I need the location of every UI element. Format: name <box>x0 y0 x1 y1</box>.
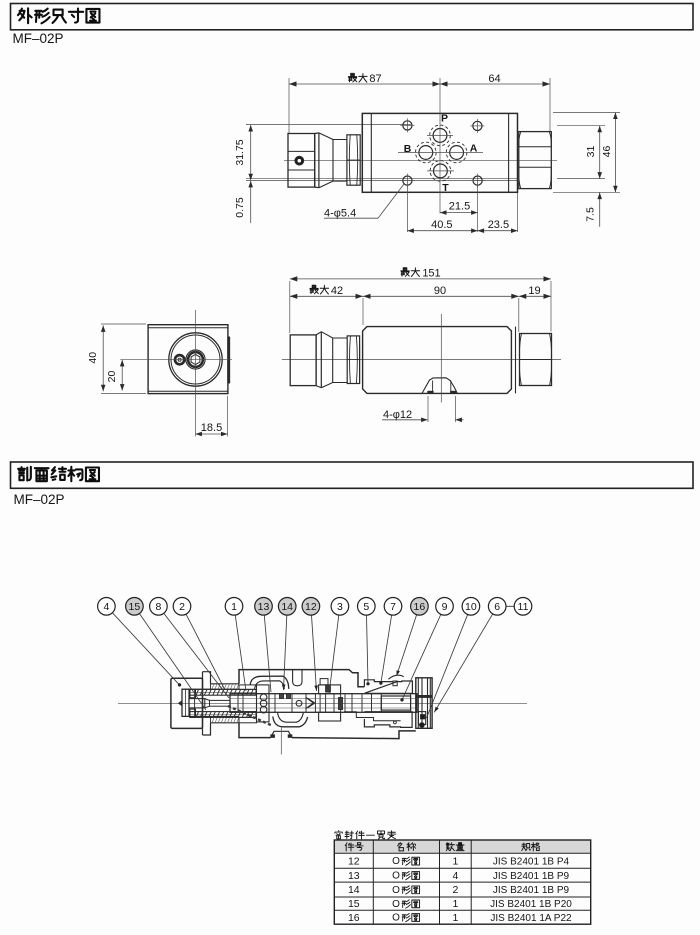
svg-text:46: 46 <box>601 146 613 158</box>
svg-text:MF–02P: MF–02P <box>13 31 64 46</box>
svg-text:31: 31 <box>585 146 597 158</box>
svg-text:JIS B2401 1B P9: JIS B2401 1B P9 <box>493 885 570 896</box>
svg-text:31.75: 31.75 <box>234 139 246 165</box>
svg-text:O: O <box>392 913 400 924</box>
svg-text:13: 13 <box>258 601 270 613</box>
svg-text:A: A <box>470 143 478 155</box>
svg-text:12: 12 <box>348 855 360 867</box>
svg-text:42: 42 <box>331 285 343 297</box>
svg-text:P: P <box>441 113 448 125</box>
svg-text:16: 16 <box>414 601 426 613</box>
svg-text:1: 1 <box>452 898 458 910</box>
svg-text:14: 14 <box>281 601 293 613</box>
svg-text:2: 2 <box>179 601 185 613</box>
svg-text:7: 7 <box>390 601 396 613</box>
svg-text:1: 1 <box>452 912 458 924</box>
svg-text:JIS B2401 1B P20: JIS B2401 1B P20 <box>490 899 572 910</box>
svg-text:40.5: 40.5 <box>431 219 452 231</box>
svg-text:JIS B2401 1B P9: JIS B2401 1B P9 <box>493 871 570 882</box>
svg-text:O: O <box>392 871 400 882</box>
svg-text:2: 2 <box>452 884 458 896</box>
svg-text:12: 12 <box>305 601 317 613</box>
svg-text:JIS B2401 1B P4: JIS B2401 1B P4 <box>493 856 570 867</box>
svg-text:16: 16 <box>348 912 360 924</box>
svg-text:9: 9 <box>442 601 448 613</box>
svg-text:23.5: 23.5 <box>488 219 509 231</box>
svg-text:MF–02P: MF–02P <box>14 492 65 507</box>
svg-text:19: 19 <box>528 285 540 297</box>
svg-text:1: 1 <box>231 601 237 613</box>
svg-text:7.5: 7.5 <box>585 207 597 222</box>
svg-text:13: 13 <box>348 870 360 882</box>
svg-text:40: 40 <box>87 352 99 364</box>
svg-text:20: 20 <box>106 371 118 383</box>
svg-text:T: T <box>442 182 449 194</box>
svg-text:0.75: 0.75 <box>234 197 246 218</box>
svg-text:90: 90 <box>434 285 446 297</box>
svg-text:10: 10 <box>465 601 477 613</box>
svg-text:18.5: 18.5 <box>201 422 222 434</box>
svg-text:15: 15 <box>129 601 141 613</box>
svg-text:1: 1 <box>452 855 458 867</box>
svg-text:O: O <box>392 856 400 867</box>
svg-text:21.5: 21.5 <box>449 201 470 213</box>
svg-text:11: 11 <box>518 601 529 613</box>
svg-text:87: 87 <box>369 73 381 85</box>
svg-text:O: O <box>392 899 400 910</box>
svg-text:4: 4 <box>452 870 458 882</box>
svg-text:B: B <box>404 143 412 155</box>
svg-text:6: 6 <box>494 601 500 613</box>
svg-text:64: 64 <box>488 73 500 85</box>
svg-text:151: 151 <box>422 267 440 279</box>
svg-text:4-φ5.4: 4-φ5.4 <box>324 208 356 220</box>
svg-text:8: 8 <box>155 601 161 613</box>
svg-text:4-φ12: 4-φ12 <box>383 409 412 421</box>
svg-text:5: 5 <box>363 601 369 613</box>
svg-text:O: O <box>392 885 400 896</box>
svg-text:4: 4 <box>103 601 109 613</box>
svg-text:JIS B2401 1A P22: JIS B2401 1A P22 <box>490 913 572 924</box>
svg-text:15: 15 <box>348 898 360 910</box>
svg-text:14: 14 <box>348 884 360 896</box>
svg-text:3: 3 <box>337 601 343 613</box>
